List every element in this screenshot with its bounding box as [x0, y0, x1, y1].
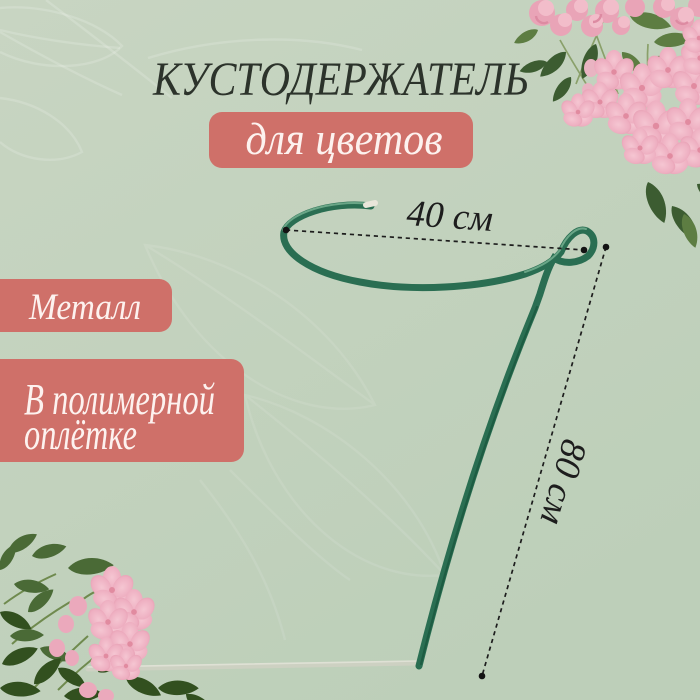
svg-text:Металл: Металл	[28, 287, 141, 328]
svg-text:оплётке: оплётке	[24, 410, 137, 459]
svg-text:КУСТОДЕРЖАТЕЛЬ: КУСТОДЕРЖАТЕЛЬ	[152, 53, 529, 106]
svg-text:40 см: 40 см	[405, 193, 494, 240]
svg-text:для цветов: для цветов	[246, 113, 443, 164]
